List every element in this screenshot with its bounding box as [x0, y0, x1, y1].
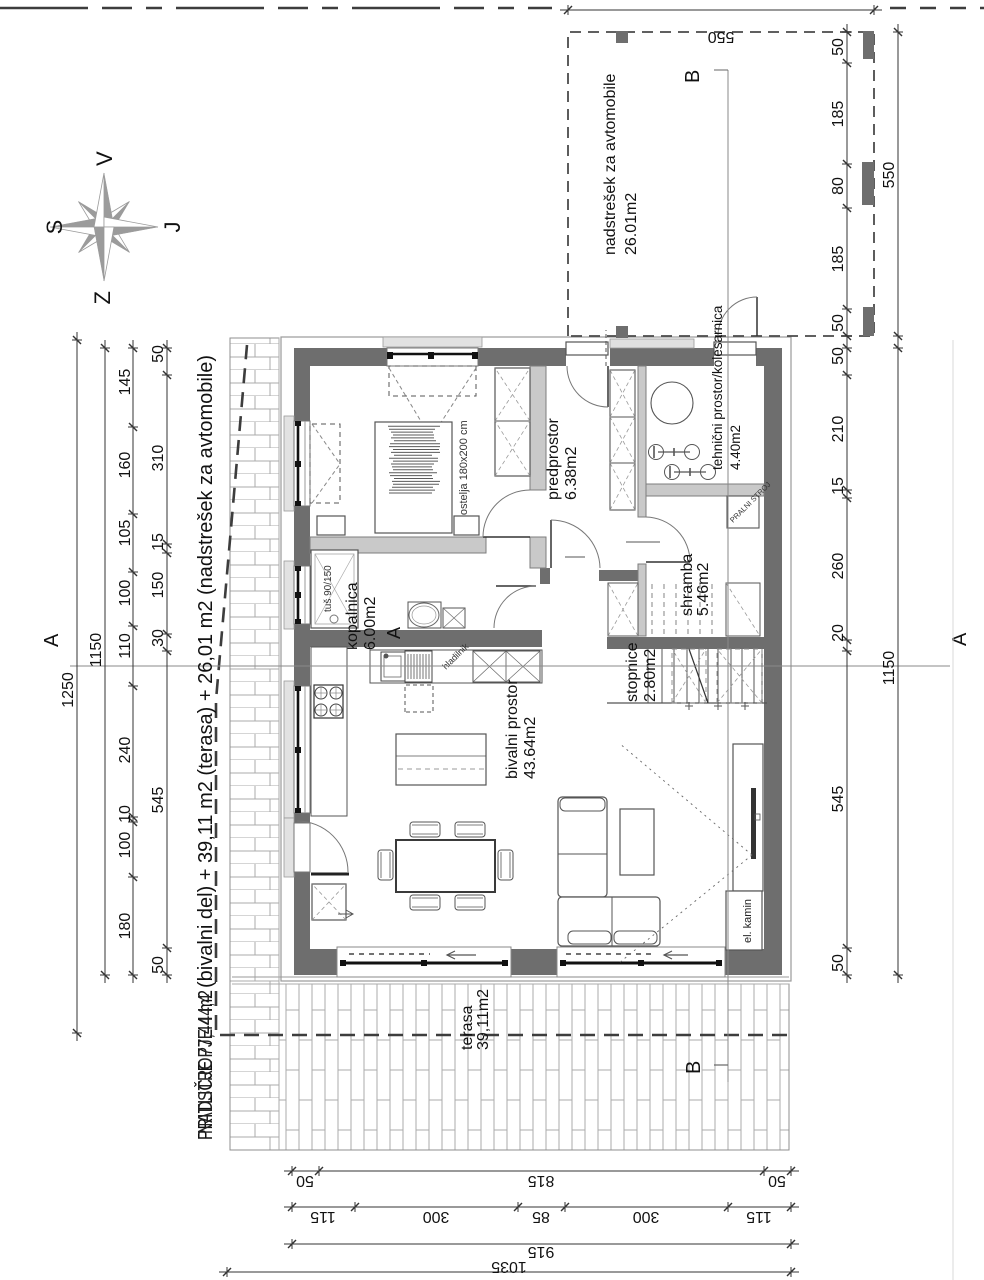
- svg-text:kopalnica: kopalnica: [344, 582, 361, 650]
- svg-text:el. kamin: el. kamin: [742, 899, 754, 943]
- svg-text:NADSTROPJE 44,4: NADSTROPJE 44,4: [195, 994, 217, 1134]
- svg-text:stopnice: stopnice: [624, 642, 641, 702]
- svg-text:50: 50: [296, 1172, 314, 1189]
- svg-text:115: 115: [310, 1208, 336, 1225]
- svg-text:1035: 1035: [491, 1258, 527, 1275]
- svg-text:50: 50: [150, 345, 167, 363]
- svg-text:550: 550: [708, 28, 735, 45]
- svg-text:V: V: [92, 151, 117, 166]
- svg-text:240: 240: [117, 737, 134, 764]
- svg-text:1150: 1150: [88, 633, 105, 668]
- svg-text:20: 20: [830, 624, 847, 642]
- svg-text:915: 915: [528, 1243, 555, 1260]
- svg-text:26.01m2: 26.01m2: [623, 193, 640, 255]
- svg-text:50: 50: [830, 314, 847, 332]
- svg-text:2.80m2: 2.80m2: [642, 649, 659, 702]
- svg-text:43.64m2: 43.64m2: [522, 717, 539, 779]
- svg-text:260: 260: [830, 553, 847, 580]
- svg-text:110: 110: [117, 633, 134, 659]
- svg-text:85: 85: [532, 1208, 550, 1225]
- svg-text:180: 180: [117, 913, 134, 940]
- svg-text:(bivalni del) + 39,11 m2 (tera: (bivalni del) + 39,11 m2 (terasa) + 26,0…: [195, 355, 217, 988]
- svg-text:160: 160: [117, 452, 134, 479]
- svg-text:50: 50: [768, 1172, 786, 1189]
- svg-text:S: S: [42, 220, 67, 235]
- svg-text:4.40m2: 4.40m2: [728, 425, 743, 470]
- svg-text:shramba: shramba: [679, 554, 696, 616]
- svg-text:B: B: [683, 1061, 705, 1074]
- svg-text:B: B: [682, 70, 704, 83]
- svg-text:545: 545: [830, 786, 847, 813]
- svg-text:10: 10: [117, 805, 134, 823]
- svg-text:15: 15: [830, 477, 847, 495]
- svg-text:185: 185: [830, 101, 847, 128]
- svg-text:tehnični prostor/kolesarnica: tehnični prostor/kolesarnica: [710, 305, 725, 470]
- svg-text:545: 545: [150, 787, 167, 814]
- svg-text:210: 210: [830, 416, 847, 443]
- svg-text:150: 150: [150, 572, 167, 599]
- svg-text:50: 50: [830, 38, 847, 56]
- svg-text:50: 50: [830, 347, 847, 365]
- svg-text:A: A: [41, 633, 63, 647]
- svg-text:A: A: [949, 632, 971, 646]
- svg-text:145: 145: [117, 369, 134, 396]
- svg-text:15: 15: [150, 533, 167, 551]
- svg-text:310: 310: [150, 445, 167, 472]
- svg-text:6.38m2: 6.38m2: [563, 447, 580, 500]
- svg-text:550: 550: [881, 162, 898, 189]
- svg-text:39,11m2: 39,11m2: [475, 989, 492, 1050]
- svg-text:115: 115: [746, 1208, 772, 1225]
- svg-text:105: 105: [117, 520, 134, 547]
- svg-text:185: 185: [830, 246, 847, 273]
- svg-text:100: 100: [117, 580, 134, 607]
- svg-text:300: 300: [633, 1208, 660, 1225]
- svg-text:50: 50: [830, 954, 847, 972]
- svg-text:nadstrešek za avtomobile: nadstrešek za avtomobile: [602, 73, 619, 255]
- svg-text:5.46m2: 5.46m2: [695, 563, 712, 616]
- svg-text:1150: 1150: [881, 651, 898, 686]
- svg-text:300: 300: [423, 1208, 450, 1225]
- svg-text:Z: Z: [90, 291, 115, 304]
- svg-text:A: A: [384, 627, 404, 639]
- svg-text:6.00m2: 6.00m2: [362, 597, 379, 650]
- svg-text:815: 815: [528, 1172, 555, 1189]
- svg-text:50: 50: [150, 956, 167, 974]
- svg-text:J: J: [160, 222, 185, 233]
- svg-text:terasa: terasa: [459, 1005, 476, 1050]
- svg-text:bivalni prostor: bivalni prostor: [504, 679, 521, 779]
- svg-text:30: 30: [150, 629, 167, 647]
- svg-text:predprostor: predprostor: [545, 418, 562, 500]
- svg-text:100: 100: [117, 832, 134, 859]
- svg-text:80: 80: [830, 177, 847, 195]
- svg-text:- postelja 180x200 cm: - postelja 180x200 cm: [458, 420, 470, 528]
- svg-text:tuš 90/150: tuš 90/150: [323, 565, 334, 612]
- svg-text:1250: 1250: [60, 672, 77, 708]
